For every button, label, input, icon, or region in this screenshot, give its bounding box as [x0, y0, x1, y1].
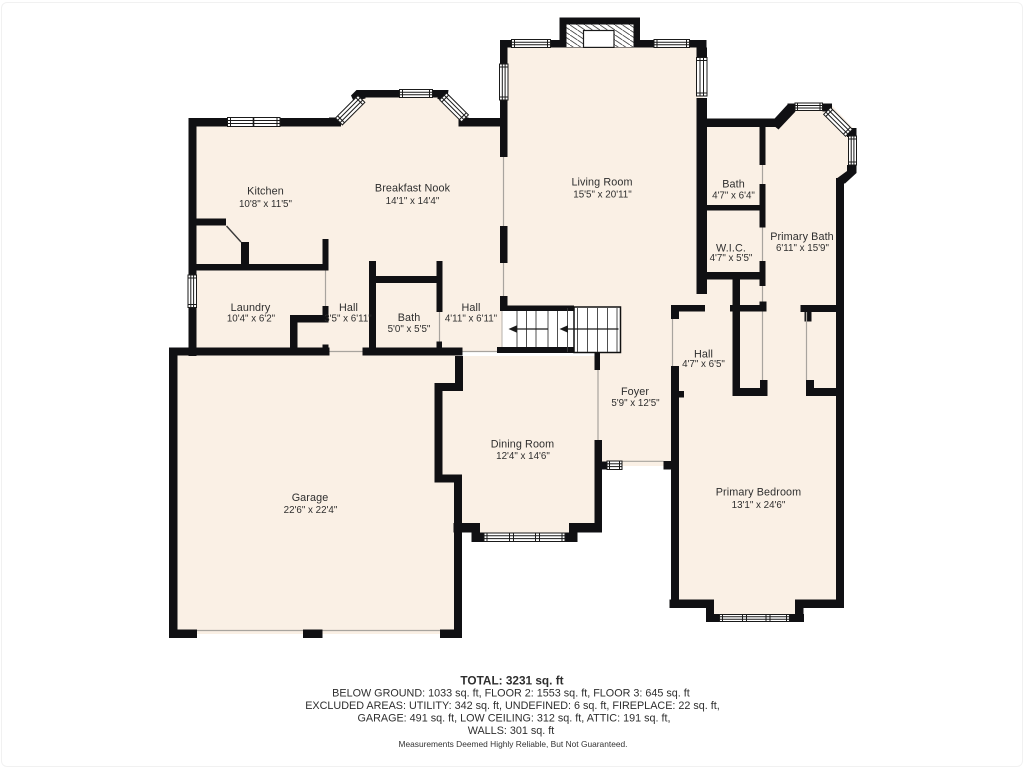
- svg-text:Measurements Deemed Highly Rel: Measurements Deemed Highly Reliable, But…: [398, 739, 627, 749]
- svg-text:4'7" x 5'5": 4'7" x 5'5": [710, 253, 753, 264]
- svg-text:6'11" x 15'9": 6'11" x 15'9": [776, 243, 830, 254]
- svg-text:Garage: Garage: [292, 492, 329, 504]
- svg-text:4'7" x 6'5": 4'7" x 6'5": [682, 359, 725, 370]
- svg-text:4'7" x 6'4": 4'7" x 6'4": [712, 191, 755, 202]
- svg-text:5'9" x 12'5": 5'9" x 12'5": [611, 398, 660, 409]
- svg-text:Bath: Bath: [398, 312, 421, 324]
- svg-text:GARAGE: 491 sq. ft, LOW CEILIN: GARAGE: 491 sq. ft, LOW CEILING: 312 sq.…: [357, 713, 670, 725]
- svg-text:15'5" x 20'11": 15'5" x 20'11": [573, 190, 632, 201]
- svg-text:Living Room: Living Room: [571, 177, 632, 189]
- svg-text:12'4" x 14'6": 12'4" x 14'6": [496, 451, 550, 462]
- svg-text:Hall: Hall: [339, 302, 358, 314]
- svg-text:10'8" x 11'5": 10'8" x 11'5": [239, 199, 293, 210]
- svg-text:22'6" x 22'4": 22'6" x 22'4": [284, 505, 338, 516]
- svg-text:TOTAL: 3231 sq. ft: TOTAL: 3231 sq. ft: [460, 674, 563, 688]
- svg-text:14'1" x 14'4": 14'1" x 14'4": [386, 196, 440, 207]
- svg-text:Hall: Hall: [462, 302, 481, 314]
- svg-text:Primary Bath: Primary Bath: [770, 231, 834, 243]
- svg-text:13'1" x 24'6": 13'1" x 24'6": [732, 500, 786, 511]
- svg-text:Dining Room: Dining Room: [491, 439, 555, 451]
- svg-text:Kitchen: Kitchen: [247, 186, 284, 198]
- svg-text:10'4" x 6'2": 10'4" x 6'2": [227, 314, 276, 325]
- svg-text:Bath: Bath: [722, 179, 745, 191]
- svg-text:3'5" x 6'11": 3'5" x 6'11": [324, 314, 372, 325]
- svg-text:BELOW GROUND: 1033 sq. ft, FLO: BELOW GROUND: 1033 sq. ft, FLOOR 2: 1553…: [332, 688, 690, 700]
- svg-text:Laundry: Laundry: [231, 302, 271, 314]
- svg-text:WALLS: 301 sq. ft: WALLS: 301 sq. ft: [468, 725, 555, 737]
- svg-text:4'11" x 6'11": 4'11" x 6'11": [445, 314, 498, 325]
- svg-text:Primary Bedroom: Primary Bedroom: [716, 487, 802, 499]
- svg-text:Breakfast Nook: Breakfast Nook: [375, 183, 451, 195]
- svg-text:Foyer: Foyer: [621, 386, 649, 398]
- svg-text:5'0" x 5'5": 5'0" x 5'5": [388, 324, 431, 335]
- svg-text:EXCLUDED AREAS: UTILITY: 342 s: EXCLUDED AREAS: UTILITY: 342 sq. ft, UND…: [305, 700, 720, 712]
